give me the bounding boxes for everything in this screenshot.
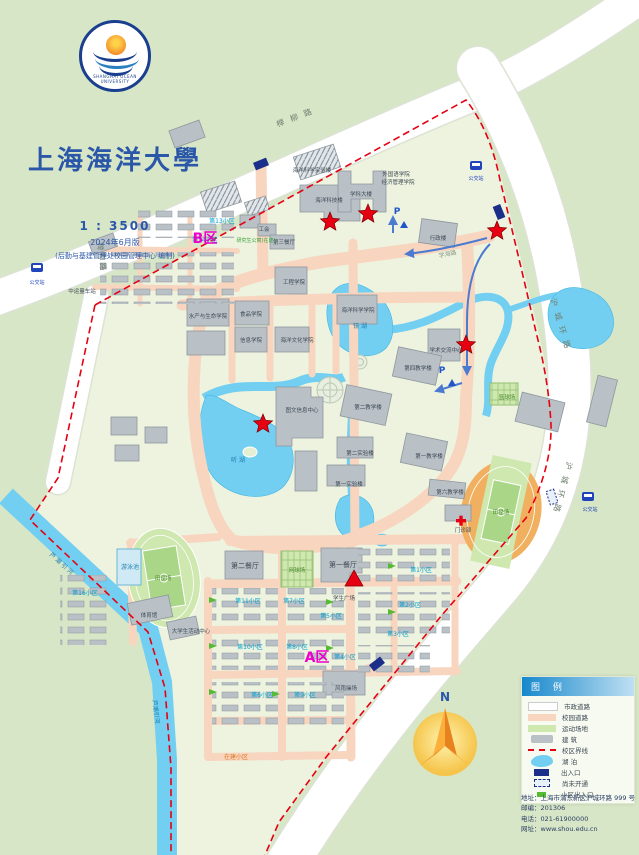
map-label: 工程学院 xyxy=(283,278,306,286)
contact-line: 邮编：201306 xyxy=(521,803,637,813)
map-label: 海洋科技楼 xyxy=(315,196,343,204)
map-label: 水产与生命学院 xyxy=(189,312,228,320)
map-label: 听 湖 xyxy=(231,456,245,464)
bus-stop-icon xyxy=(33,265,41,268)
contact-line: 网址：www.shou.edu.cn xyxy=(521,824,637,834)
map-label: 第一教学楼 xyxy=(415,452,443,460)
map-label: 学科大楼 xyxy=(350,190,373,198)
map-label: 第六教学楼 xyxy=(436,488,464,496)
map-label: 第6小区 xyxy=(251,691,273,699)
legend-item-label: 校园道路 xyxy=(562,712,588,722)
map-label: 第10小区 xyxy=(237,643,263,651)
map-label: 第4小区 xyxy=(334,653,356,661)
map-label: 中运量车站 xyxy=(68,287,96,295)
map-label: 第5小区 xyxy=(320,612,342,620)
map-label: 工会 xyxy=(258,225,270,233)
map-label: 第三餐厅 xyxy=(273,238,296,246)
legend-item-label: 建 筑 xyxy=(562,734,577,744)
map-label: 镜 湖 xyxy=(353,322,367,330)
map-label: 第3小区 xyxy=(387,630,409,638)
map-label: 第2小区 xyxy=(399,601,421,609)
map-label: 学术交流中心 xyxy=(429,346,463,354)
legend-item: 湖 泊 xyxy=(528,756,629,766)
road-campus-swatch xyxy=(528,714,556,721)
contact-line: 电话：021-61900000 xyxy=(521,814,637,824)
map-label: 第1小区 xyxy=(410,566,432,574)
university-name: 上海海洋大學 xyxy=(20,140,210,177)
bus-stop-icon xyxy=(472,163,480,166)
university-logo: SHANGHAI OCEAN UNIVERSITY xyxy=(79,20,151,92)
map-label: P xyxy=(439,366,446,376)
map-label: 第13小区 xyxy=(209,217,235,225)
legend-item-label: 湖 泊 xyxy=(562,756,577,766)
map-label: 图文信息中心 xyxy=(285,406,319,414)
compass-north-label: N xyxy=(402,690,488,704)
map-label: 田径场 xyxy=(155,574,172,582)
map-label: 在建小区 xyxy=(224,753,248,761)
legend-item: 尚未开通 xyxy=(528,778,629,788)
map-label: 海洋文化学院 xyxy=(280,336,314,344)
campus-map-page: 榉 柳 路榉柳路沪 城 环 路沪 城 环 路芦 潮 引 河芦潮引河镜 湖听 湖游… xyxy=(0,0,639,855)
map-label: 第四教学楼 xyxy=(404,364,432,372)
map-credit: (后勤与基建管理处校园管理中心 编制) xyxy=(20,251,210,261)
legend-item: 出入口 xyxy=(528,767,629,777)
map-label: 风雨操场 xyxy=(335,684,358,692)
map-label: 第9小区 xyxy=(294,691,316,699)
legend: 图 例 市政道路校园道路运动场地建 筑校区界线湖 泊出入口尚未开通小区出入口 xyxy=(521,676,635,804)
map-label: 体育馆 xyxy=(141,611,158,619)
map-label: 第一实验楼 xyxy=(335,480,363,488)
map-label: 网球场 xyxy=(289,566,306,574)
map-label: 田径场 xyxy=(493,508,510,516)
map-label: 门诊部 xyxy=(455,526,472,534)
map-label: A区 xyxy=(305,650,330,666)
map-label: 第16小区 xyxy=(72,589,98,597)
map-label: 海洋科学实验楼 xyxy=(293,166,332,174)
building-swatch xyxy=(531,735,553,743)
map-label: 外国语学院 xyxy=(382,170,410,178)
map-label: 篮球场 xyxy=(499,393,516,401)
map-label: 大学生活动中心 xyxy=(172,627,211,635)
legend-item-label: 运动场地 xyxy=(562,723,588,733)
map-edition: 2024年6月版 xyxy=(20,237,210,248)
contact-line: 地址：上海市浦东新区沪城环路 999 号 xyxy=(521,793,637,803)
map-label: P xyxy=(394,207,401,217)
legend-title: 图 例 xyxy=(522,677,634,696)
legend-item-label: 校区界线 xyxy=(562,745,588,755)
legend-item: 运动场地 xyxy=(528,723,629,733)
university-name-en: SHANGHAI OCEAN UNIVERSITY xyxy=(82,74,148,84)
road-city-swatch xyxy=(528,702,558,711)
map-label: 第一餐厅 xyxy=(329,560,357,569)
bus-stop-icon xyxy=(584,494,592,497)
map-label: 行政楼 xyxy=(430,234,447,242)
map-label: 游泳池 xyxy=(121,563,139,571)
gate-swatch xyxy=(534,769,549,776)
map-label: 第二实验楼 xyxy=(346,449,374,457)
sports-swatch xyxy=(528,725,556,732)
map-label: 研究生公寓(在建) xyxy=(237,237,276,244)
map-label: 信息学院 xyxy=(240,336,263,344)
legend-item: 校区界线 xyxy=(528,745,629,755)
map-label: 第二餐厅 xyxy=(231,561,259,570)
map-label: 公交站 xyxy=(582,506,597,513)
contact-info: 地址：上海市浦东新区沪城环路 999 号邮编：201306电话：021-6190… xyxy=(521,793,637,835)
legend-item-label: 市政道路 xyxy=(564,701,590,711)
map-label: 公交站 xyxy=(468,175,483,182)
title-block: SHANGHAI OCEAN UNIVERSITY 上海海洋大學 1 : 350… xyxy=(20,20,210,261)
legend-item-label: 尚未开通 xyxy=(562,778,588,788)
map-label: 经济管理学院 xyxy=(381,178,415,186)
compass: N xyxy=(402,690,488,784)
legend-item: 市政道路 xyxy=(528,701,629,711)
legend-item-label: 出入口 xyxy=(561,767,581,777)
map-scale: 1 : 3500 xyxy=(20,219,210,233)
map-label: 海洋科学学院 xyxy=(341,306,375,314)
map-label: 公交站 xyxy=(29,279,44,286)
basketball-courts xyxy=(490,383,518,405)
map-label: 学生广场 xyxy=(333,594,356,602)
lake-swatch xyxy=(531,755,553,767)
map-label: 食品学院 xyxy=(240,310,263,318)
map-label: 第11小区 xyxy=(235,597,261,605)
boundary-swatch xyxy=(528,749,556,751)
legend-item: 建 筑 xyxy=(528,734,629,744)
map-label: 第二教学楼 xyxy=(354,403,382,411)
legend-item: 校园道路 xyxy=(528,712,629,722)
map-label: 第7小区 xyxy=(283,597,305,605)
compass-rose-icon xyxy=(405,704,485,780)
gate-closed-swatch xyxy=(534,779,550,787)
logo-wave-icon xyxy=(99,55,133,76)
